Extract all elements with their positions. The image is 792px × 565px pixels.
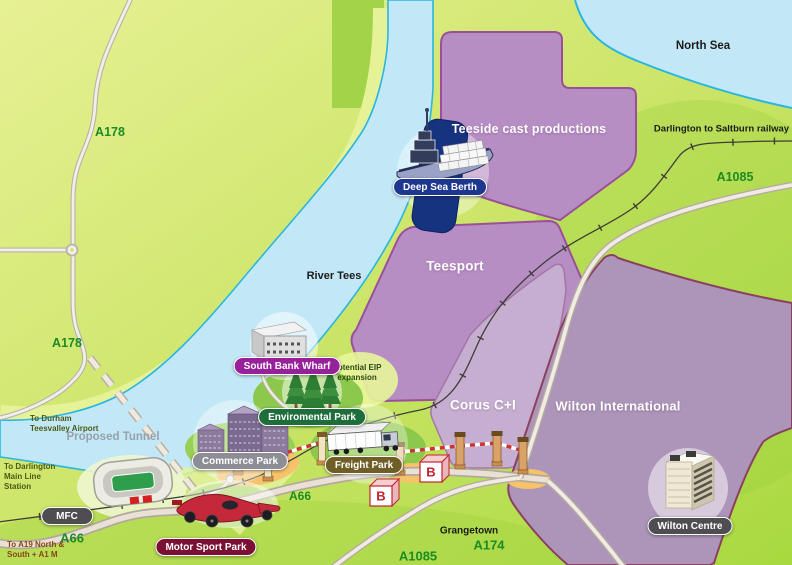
road-label-a1085-ne: A1085 (717, 170, 754, 184)
motor-sport-park-pill: Motor Sport Park (155, 538, 256, 556)
wilton-centre-pill: Wilton Centre (648, 517, 733, 535)
region-label-teesport: Teesport (426, 259, 484, 274)
commerce-park-pill: Commerce Park (192, 452, 288, 470)
road-label-a66-mid: A66 (289, 489, 311, 503)
stadium-icon (92, 456, 174, 508)
deep-sea-berth-pill: Deep Sea Berth (393, 178, 487, 196)
north-sea-label: North Sea (676, 40, 730, 52)
gate-tower-icon (518, 437, 529, 474)
teesside-development-map: North Sea Darlington to Saltburn railway… (0, 0, 792, 565)
road-label-a174: A174 (473, 538, 504, 553)
region-label-teeside-cast: Teeside cast productions (452, 122, 607, 136)
gate-tower-icon (455, 432, 466, 469)
b-marker-letter: B (376, 489, 385, 504)
river-tees-label: River Tees (307, 270, 362, 282)
gate-tower-icon (492, 431, 503, 466)
map-canvas (0, 0, 792, 565)
railway-label: Darlington to Saltburn railway line (654, 124, 792, 135)
road-label-a178-lower: A178 (52, 336, 82, 350)
mfc-pill: MFC (41, 507, 93, 525)
region-label-corus: Corus C+I (450, 398, 516, 413)
region-label-wilton-international: Wilton International (555, 399, 680, 414)
road-label-a1085-south: A1085 (399, 549, 437, 564)
to-a19-note: To A19 North & South + A1 M (7, 540, 64, 560)
b-marker-letter: B (426, 465, 435, 480)
roundabout-centre (70, 248, 74, 252)
wilton-centre-building-icon (648, 448, 728, 528)
road-label-a178-upper: A178 (95, 125, 125, 139)
environmental-park-pill: Enviromental Park (258, 408, 366, 426)
south-bank-wharf-pill: South Bank Wharf (234, 357, 341, 375)
to-darlington-note: To Darlington Main Line Station (4, 462, 55, 492)
grangetown-label: Grangetown (440, 526, 498, 537)
freight-park-pill: Freight Park (325, 456, 403, 474)
to-durham-note: To Durham Teesvalley Airport (30, 414, 98, 434)
